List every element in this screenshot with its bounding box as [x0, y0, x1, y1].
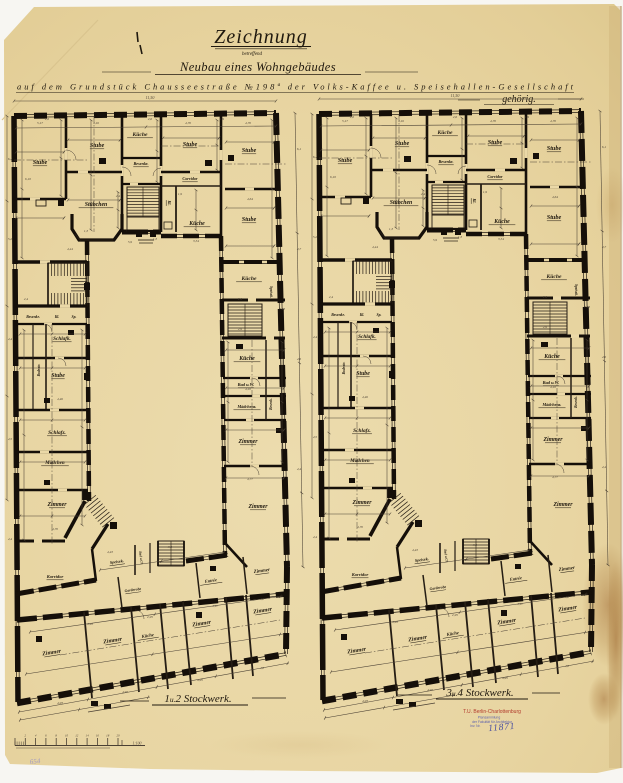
svg-text:gehörig.: gehörig.	[502, 94, 536, 105]
svg-text:Inv. Nr.: Inv. Nr.	[470, 724, 481, 728]
svg-text:Corridor: Corridor	[182, 176, 197, 181]
svg-text:1u.2 Stockwerk.: 1u.2 Stockwerk.	[164, 693, 231, 705]
svg-text:Korridor: Korridor	[46, 574, 64, 579]
svg-text:10: 10	[65, 734, 69, 738]
svg-text:Speisek.: Speisek.	[269, 286, 273, 298]
svg-text:Neubau eines Wohngebäudes: Neubau eines Wohngebäudes	[179, 60, 336, 74]
svg-text:Besenkr.: Besenkr.	[132, 161, 148, 166]
svg-text:Stube: Stube	[183, 141, 198, 148]
svg-text:Kl.: Kl.	[167, 199, 172, 205]
svg-text:Stube: Stube	[242, 147, 257, 154]
svg-text:14: 14	[86, 734, 90, 738]
svg-text:Zimmer: Zimmer	[238, 439, 259, 445]
svg-text:Schlafk.: Schlafk.	[53, 336, 71, 342]
svg-text:Stube: Stube	[242, 216, 257, 223]
svg-text:12: 12	[75, 734, 79, 738]
svg-text:Küche: Küche	[238, 356, 255, 362]
svg-text:Küche: Küche	[188, 221, 205, 227]
svg-text:Sp.: Sp.	[72, 315, 77, 319]
svg-text:Küche: Küche	[132, 132, 148, 138]
svg-text:Küche: Küche	[241, 276, 257, 282]
svg-text:Besenk.: Besenk.	[269, 398, 273, 411]
svg-text:Zimmer: Zimmer	[248, 504, 269, 510]
svg-text:Stube: Stube	[90, 142, 105, 149]
svg-text:Besenkr.: Besenkr.	[25, 315, 40, 319]
svg-text:Mädchenz.: Mädchenz.	[237, 404, 257, 409]
svg-text:18: 18	[106, 734, 110, 738]
svg-text:Zeichnung: Zeichnung	[214, 26, 307, 48]
svg-text:Stube: Stube	[51, 373, 65, 379]
svg-text:betreffend: betreffend	[242, 52, 263, 57]
svg-text:Kl.: Kl.	[54, 315, 60, 319]
svg-text:1:100: 1:100	[133, 742, 142, 746]
svg-text:Stübchen: Stübchen	[85, 202, 108, 208]
svg-text:Zimmer: Zimmer	[47, 502, 68, 508]
svg-text:20: 20	[116, 734, 120, 738]
svg-text:654: 654	[29, 757, 41, 766]
svg-text:3u.4 Stockwerk.: 3u.4 Stockwerk.	[445, 687, 513, 699]
svg-text:Schlafz.: Schlafz.	[48, 430, 66, 436]
svg-text:Bodentr.: Bodentr.	[37, 364, 41, 378]
svg-text:16: 16	[96, 734, 100, 738]
svg-text:T.U. Berlin-Charlottenburg: T.U. Berlin-Charlottenburg	[463, 709, 521, 715]
